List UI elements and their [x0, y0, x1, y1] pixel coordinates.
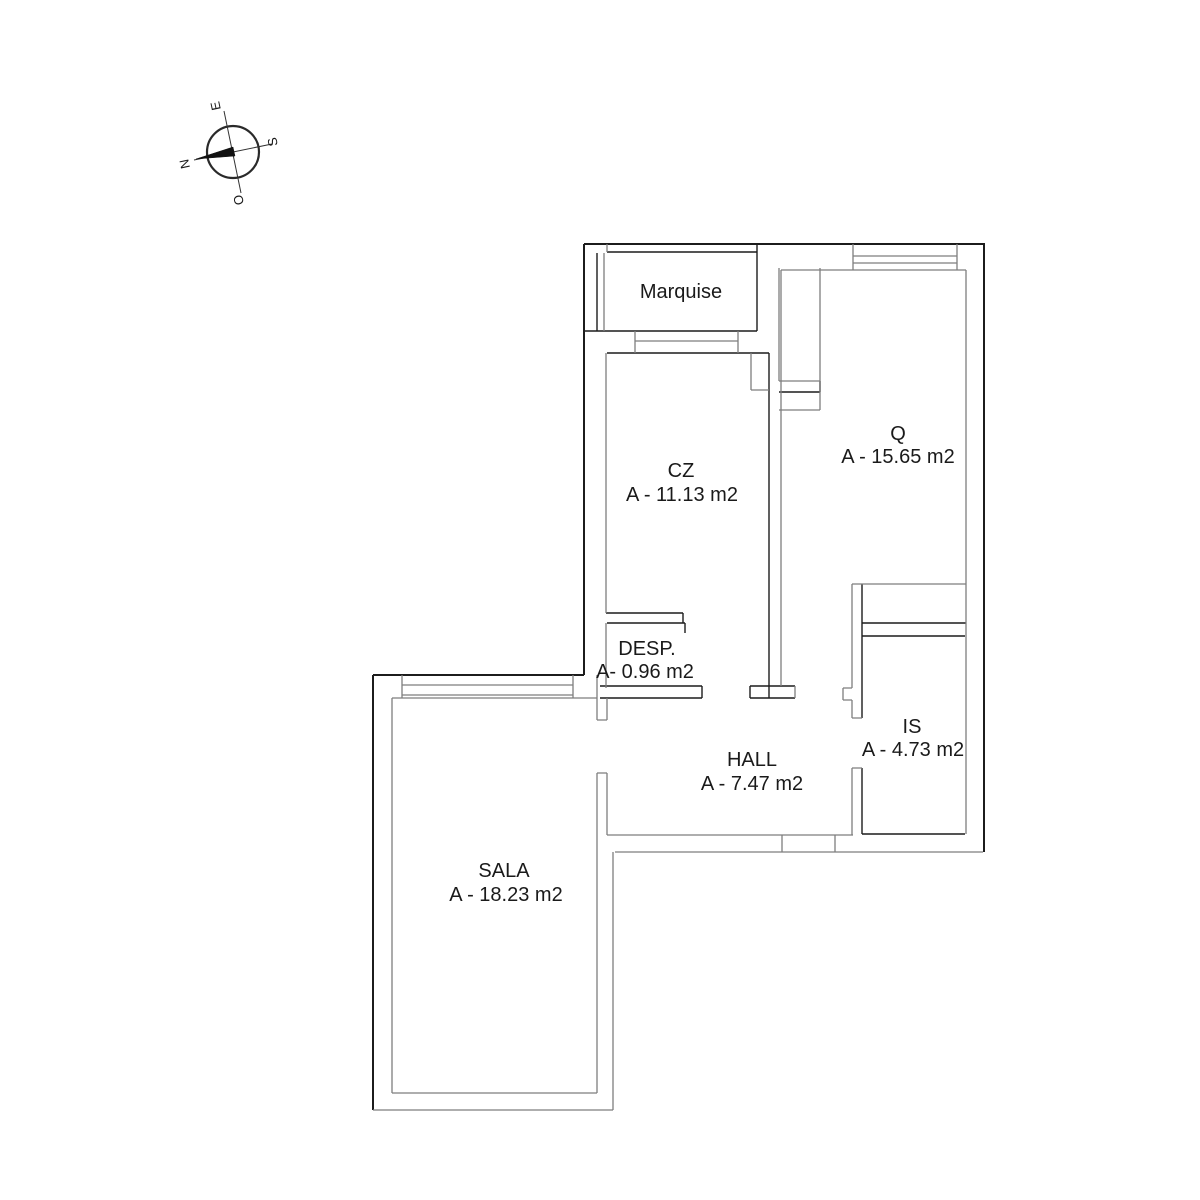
compass-label-north: N	[176, 158, 193, 170]
room-label-q: Q	[890, 423, 906, 445]
room-area-hall: A - 7.47 m2	[701, 773, 803, 795]
room-area-desp: A- 0.96 m2	[596, 661, 694, 683]
compass-needle-icon	[196, 147, 235, 159]
room-label-hall: HALL	[727, 749, 777, 771]
hall-top-wall-mid-segment	[750, 686, 795, 698]
room-label-cz: CZ	[668, 460, 695, 482]
room-area-cz: A - 11.13 m2	[626, 484, 738, 506]
compass-label-south: S	[264, 136, 281, 148]
room-label-sala: SALA	[478, 860, 530, 882]
is-left-face-lower	[852, 768, 862, 835]
room-area-sala: A - 18.23 m2	[449, 884, 562, 906]
q-closet-door-line	[779, 381, 820, 392]
q-window	[853, 244, 957, 270]
compass-label-east: E	[207, 100, 224, 112]
room-label-marquise: Marquise	[640, 281, 722, 303]
is-left-face-upper	[843, 584, 862, 718]
cz-right-jog	[751, 353, 769, 390]
marquise-inner-face	[604, 244, 607, 331]
room-labels: Marquise CZ A - 11.13 m2 Q A - 15.65 m2 …	[449, 281, 964, 906]
bottom-wall-joints	[782, 835, 835, 852]
compass-label-west: O	[230, 193, 247, 206]
floor-plan-page: E S N O	[0, 0, 1200, 1200]
room-area-q: A - 15.65 m2	[841, 446, 954, 468]
sala-window	[402, 675, 573, 698]
room-label-desp: DESP.	[618, 638, 675, 660]
q-wardrobe	[779, 268, 820, 410]
floor-plan-drawing: E S N O	[0, 0, 1200, 1200]
room-label-is: IS	[903, 716, 922, 738]
hall-top-wall-left-segment	[600, 686, 702, 698]
compass-rose: E S N O	[176, 100, 281, 207]
hall-sala-wall-lower	[597, 773, 607, 835]
room-area-is: A - 4.73 m2	[862, 739, 964, 761]
entrance-threshold	[635, 331, 738, 353]
cz-desp-dividing-wall	[606, 613, 685, 633]
